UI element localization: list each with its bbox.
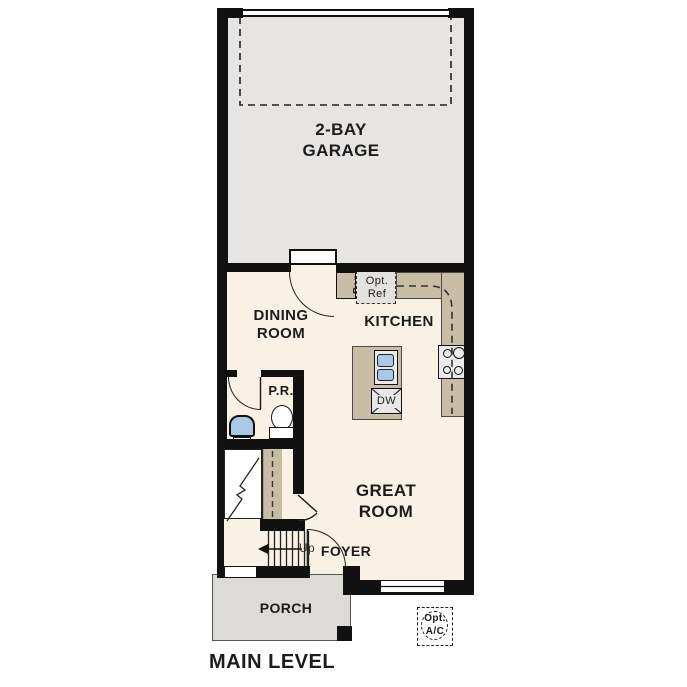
foyer-window (224, 566, 257, 578)
wall-left-garage (217, 8, 228, 272)
wall-left-main (217, 272, 227, 450)
wall-top-left-corner (217, 8, 243, 18)
wall-top-right-corner (448, 8, 474, 18)
burner-icon (454, 366, 463, 375)
wall-stair-cap (260, 519, 305, 531)
burner-icon (443, 349, 452, 358)
porch-label: PORCH (260, 600, 313, 617)
sink-basin (377, 369, 394, 381)
under-stair-closet (224, 449, 262, 519)
sink-basin (377, 354, 394, 367)
toilet-tank (269, 427, 295, 439)
powder-sink (229, 415, 255, 437)
optional-ac-label: Opt. A/C (424, 613, 446, 638)
foyer-label: FOYER (321, 543, 371, 560)
dishwasher-label: DW (375, 395, 398, 408)
wall-garage-main (217, 263, 474, 272)
wall-left-lower (217, 450, 224, 578)
up-label: Up (299, 541, 315, 556)
burner-icon (453, 347, 465, 359)
kitchen-label: KITCHEN (364, 313, 433, 331)
burner-icon (443, 366, 451, 374)
wall-powder-bottom (217, 439, 304, 449)
porch-post (337, 626, 352, 641)
greatroom-window (380, 580, 445, 593)
great-room-label: GREAT ROOM (356, 481, 416, 522)
wall-powder-top-stub (227, 370, 237, 377)
stair-run-upper (263, 449, 282, 519)
page-title: MAIN LEVEL (209, 650, 335, 674)
garage-door (243, 9, 449, 17)
powder-room-label: P.R. (268, 383, 293, 399)
garage-entry-threshold (289, 249, 337, 265)
wall-right (464, 8, 474, 595)
garage-label: 2-BAY GARAGE (302, 120, 379, 161)
floor-plan: Pan Opt. Ref Opt. A/C (0, 0, 687, 687)
optional-refrigerator-label: Opt. Ref (366, 275, 388, 300)
wall-powder-right-stair (293, 370, 304, 494)
dining-room-label: DINING ROOM (254, 307, 309, 344)
